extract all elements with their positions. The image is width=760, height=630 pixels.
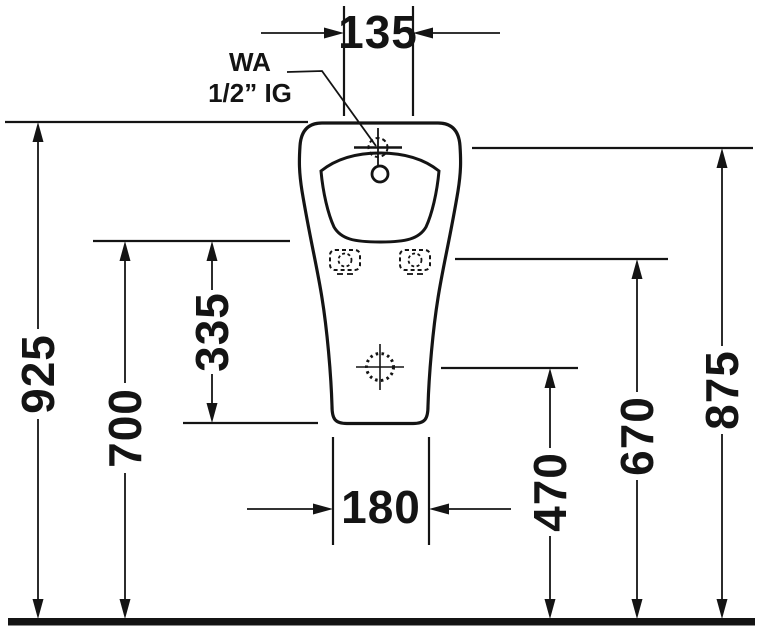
dim-label-670: 670	[614, 396, 660, 476]
dim-label-925: 925	[15, 334, 61, 414]
drawing-canvas: 135 180 925 700 335 470 670 875 WA 1/2” …	[0, 0, 760, 630]
dim-label-700: 700	[102, 388, 148, 468]
dim-label-875: 875	[699, 350, 745, 430]
dim-label-335: 335	[189, 292, 235, 372]
dim-label-135: 135	[338, 9, 418, 55]
water-connection-label-line2: 1/2” IG	[208, 78, 292, 109]
urinal-technical-drawing	[0, 0, 760, 630]
dim-label-180: 180	[341, 484, 421, 530]
water-connection-label-line1: WA	[208, 47, 292, 78]
ground-line	[8, 618, 755, 626]
water-connection-label: WA 1/2” IG	[208, 47, 292, 109]
dim-label-470: 470	[527, 452, 573, 532]
inlet-hole-icon	[372, 166, 388, 182]
